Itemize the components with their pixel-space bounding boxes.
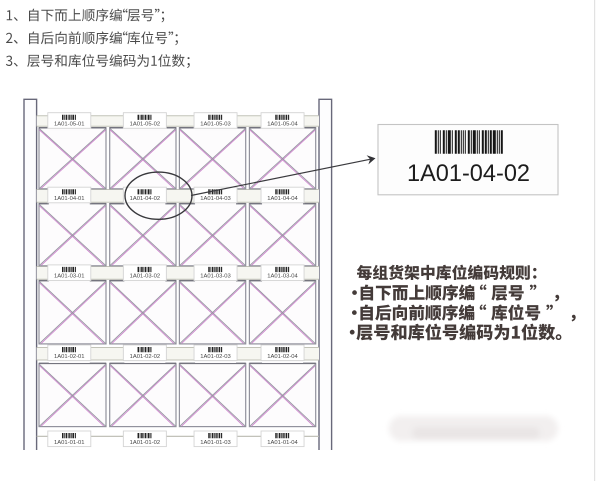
svg-text:1A01-01-02: 1A01-01-02 xyxy=(130,440,161,446)
svg-text:1A01-05-04: 1A01-05-04 xyxy=(267,122,298,128)
svg-text:1A01-05-02: 1A01-05-02 xyxy=(130,122,161,128)
svg-text:1A01-05-03: 1A01-05-03 xyxy=(200,122,231,128)
svg-text:1A01-01-04: 1A01-01-04 xyxy=(267,440,298,446)
svg-text:1A01-03-02: 1A01-03-02 xyxy=(130,274,161,280)
svg-text:1A01-04-02: 1A01-04-02 xyxy=(407,160,530,187)
svg-text:1A01-04-01: 1A01-04-01 xyxy=(54,196,85,202)
svg-text:1A01-04-03: 1A01-04-03 xyxy=(200,196,231,202)
svg-text:1A01-03-04: 1A01-03-04 xyxy=(267,274,298,280)
svg-text:1A01-01-01: 1A01-01-01 xyxy=(54,440,85,446)
svg-text:1A01-03-03: 1A01-03-03 xyxy=(200,274,231,280)
svg-text:1A01-02-01: 1A01-02-01 xyxy=(54,354,85,360)
svg-text:1A01-04-02: 1A01-04-02 xyxy=(130,196,161,202)
svg-text:1A01-04-04: 1A01-04-04 xyxy=(267,196,298,202)
svg-text:1A01-02-03: 1A01-02-03 xyxy=(200,354,231,360)
svg-text:1A01-02-04: 1A01-02-04 xyxy=(267,354,298,360)
svg-text:1A01-03-01: 1A01-03-01 xyxy=(54,274,85,280)
svg-text:1A01-02-02: 1A01-02-02 xyxy=(130,354,161,360)
svg-text:1A01-01-03: 1A01-01-03 xyxy=(200,440,231,446)
svg-text:1A01-05-01: 1A01-05-01 xyxy=(54,122,85,128)
